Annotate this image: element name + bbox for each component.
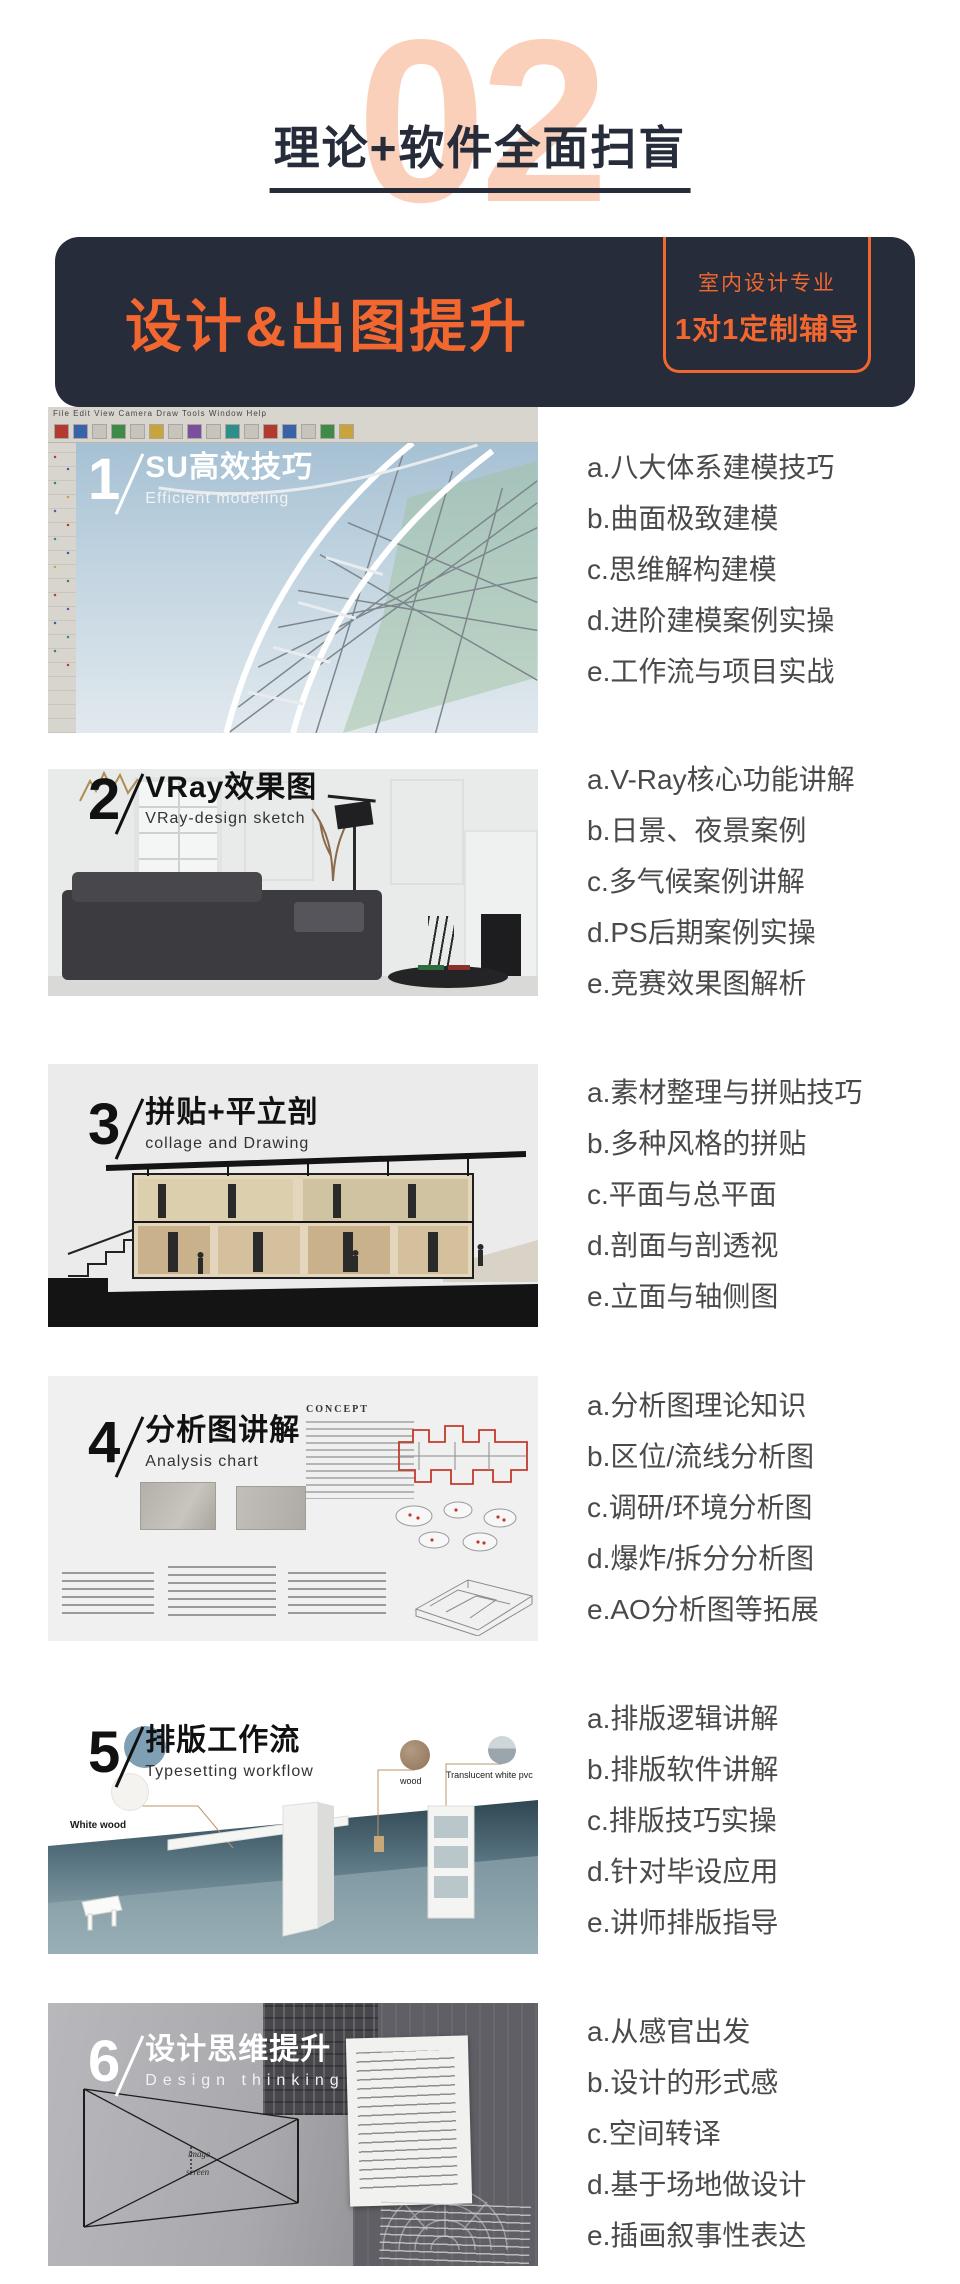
toolbar-icon	[282, 424, 297, 439]
section-number: 3	[88, 1096, 120, 1154]
page-title: 理论+软件全面扫盲	[270, 112, 691, 193]
section-subtitle: Design thinking	[145, 2072, 344, 2090]
reference-photo-thumb	[236, 1486, 306, 1530]
toolbar-icon	[320, 424, 335, 439]
section-number: 1	[88, 451, 120, 509]
course-section-design-thinking: image screen 6 设计思维提升 Design thinking a.…	[0, 1995, 960, 2273]
course-item: a.八大体系建模技巧	[587, 454, 834, 482]
course-image-typesetting: White wood wood Translucent white pvc 5 …	[48, 1688, 538, 1954]
section-title: 排版工作流	[145, 1724, 314, 1757]
course-section-su: File Edit View Camera Draw Tools Window …	[0, 407, 960, 733]
course-section-collage: 3 拼贴+平立剖 collage and Drawing a.素材整理与拼贴技巧…	[0, 1056, 960, 1334]
book-shape	[418, 965, 444, 970]
building-section-drawing	[48, 1142, 538, 1327]
course-item: d.剖面与剖透视	[587, 1232, 862, 1260]
course-item: e.AO分析图等拓展	[587, 1596, 819, 1624]
course-section-typesetting: White wood wood Translucent white pvc 5 …	[0, 1682, 960, 1960]
course-item-list: a.从感官出发 b.设计的形式感 c.空间转译 d.基于场地做设计 e.插画叙事…	[587, 1995, 806, 2273]
course-item: a.分析图理论知识	[587, 1392, 819, 1420]
course-item: c.思维解构建模	[587, 556, 834, 584]
badge-main-text: 1对1定制辅导	[666, 306, 868, 348]
course-item: d.进阶建模案例实操	[587, 607, 834, 635]
course-item: b.日景、夜景案例	[587, 817, 855, 845]
section-number: 4	[88, 1414, 120, 1472]
sketch-word-image: image	[188, 2149, 210, 2159]
hero: 02 理论+软件全面扫盲	[0, 0, 960, 237]
section-heading: 1 SU高效技巧 Efficient modeling	[88, 451, 313, 517]
sketch-word-screen: screen	[186, 2167, 209, 2177]
studio-light-head-shape	[335, 800, 374, 829]
toolbar-icon	[111, 424, 126, 439]
course-item-list: a.素材整理与拼贴技巧 b.多种风格的拼贴 c.平面与总平面 d.剖面与剖透视 …	[587, 1056, 862, 1334]
section-title: 分析图讲解	[145, 1414, 300, 1447]
course-image-design-collage: image screen 6 设计思维提升 Design thinking	[48, 2003, 538, 2266]
material-label-whitewood: White wood	[70, 1820, 126, 1831]
section-subtitle: Efficient modeling	[145, 490, 313, 508]
course-item: a.V-Ray核心功能讲解	[587, 766, 855, 794]
section-title: SU高效技巧	[145, 451, 313, 484]
bubble-diagram	[386, 1498, 536, 1556]
section-heading: 5 排版工作流 Typesetting workflow	[88, 1724, 314, 1790]
toolbar-icon	[206, 424, 221, 439]
course-item-list: a.八大体系建模技巧 b.曲面极致建模 c.思维解构建模 d.进阶建模案例实操 …	[587, 431, 834, 709]
toolbar-icon	[168, 424, 183, 439]
course-item: e.立面与轴侧图	[587, 1283, 862, 1311]
course-item-list: a.分析图理论知识 b.区位/流线分析图 c.调研/环境分析图 d.爆炸/拆分分…	[587, 1369, 819, 1647]
course-item: d.针对毕设应用	[587, 1858, 778, 1886]
course-item-list: a.排版逻辑讲解 b.排版软件讲解 c.排版技巧实操 d.针对毕设应用 e.讲师…	[587, 1682, 778, 1960]
course-image-vray-render: 2 VRay效果图 VRay-design sketch	[48, 769, 538, 996]
sketchup-toolbar-icons	[48, 420, 538, 443]
toolbar-icon	[263, 424, 278, 439]
course-item: d.基于场地做设计	[587, 2171, 806, 2199]
course-item: a.排版逻辑讲解	[587, 1705, 778, 1733]
section-number: 5	[88, 1724, 120, 1782]
banner-title: 设计&出图提升	[125, 281, 529, 363]
promo-page: 02 理论+软件全面扫盲 设计&出图提升 室内设计专业 1对1定制辅导 File…	[0, 0, 960, 2284]
section-number: 2	[88, 771, 120, 829]
handwriting-lines-dark	[379, 2201, 531, 2264]
toolbar-icon	[301, 424, 316, 439]
course-item: d.PS后期案例实操	[587, 919, 855, 947]
toolbar-icon	[339, 424, 354, 439]
sketchup-tool-palette	[48, 443, 77, 733]
course-item: d.爆炸/拆分分析图	[587, 1545, 819, 1573]
banner: 设计&出图提升 室内设计专业 1对1定制辅导	[55, 237, 915, 407]
course-image-section-drawing: 3 拼贴+平立剖 collage and Drawing	[48, 1064, 538, 1327]
course-image-analysis-slide: CONCEPT	[48, 1376, 538, 1641]
section-heading: 4 分析图讲解 Analysis chart	[88, 1414, 300, 1480]
course-item: b.曲面极致建模	[587, 505, 834, 533]
course-item: c.多气候案例讲解	[587, 868, 855, 896]
course-section-analysis: CONCEPT	[0, 1369, 960, 1647]
course-item: a.素材整理与拼贴技巧	[587, 1079, 862, 1107]
caption-text-lines	[288, 1572, 386, 1620]
course-sections: File Edit View Camera Draw Tools Window …	[0, 407, 960, 2273]
axonometric-plan-wireframe	[406, 1554, 536, 1636]
caption-text-lines	[168, 1566, 276, 1622]
handwritten-note-paper	[346, 2035, 472, 2206]
section-subtitle: collage and Drawing	[145, 1135, 319, 1153]
course-item: b.排版软件讲解	[587, 1756, 778, 1784]
section-heading: 2 VRay效果图 VRay-design sketch	[88, 771, 317, 837]
section-title: 设计思维提升	[145, 2033, 344, 2066]
banner-badge: 室内设计专业 1对1定制辅导	[663, 237, 871, 373]
material-label-pvc: Translucent white pvc	[446, 1770, 533, 1780]
material-swatch-pvc	[488, 1736, 516, 1764]
book-shape	[448, 965, 470, 970]
course-item: e.工作流与项目实战	[587, 658, 834, 686]
handwriting-lines	[356, 2049, 458, 2194]
course-item: b.多种风格的拼贴	[587, 1130, 862, 1158]
badge-subtitle: 室内设计专业	[666, 267, 868, 297]
section-heading: 6 设计思维提升 Design thinking	[88, 2033, 345, 2099]
material-label-wood: wood	[400, 1776, 422, 1786]
course-item: b.设计的形式感	[587, 2069, 806, 2097]
sketchup-menu-bar: File Edit View Camera Draw Tools Window …	[48, 407, 538, 420]
fireplace-opening-shape	[481, 914, 521, 976]
section-subtitle: Typesetting workflow	[145, 1763, 314, 1781]
toolbar-icon	[187, 424, 202, 439]
course-image-sketchup: File Edit View Camera Draw Tools Window …	[48, 407, 538, 733]
section-heading: 3 拼贴+平立剖 collage and Drawing	[88, 1096, 319, 1162]
material-swatch-wood	[400, 1740, 430, 1770]
toolbar-icon	[73, 424, 88, 439]
sofa-shape	[62, 890, 382, 980]
course-item: e.竞赛效果图解析	[587, 970, 855, 998]
section-number: 6	[88, 2033, 120, 2091]
course-item: a.从感官出发	[587, 2018, 806, 2046]
course-item: c.空间转译	[587, 2120, 806, 2148]
toolbar-icon	[225, 424, 240, 439]
floor-plan-red-outline	[393, 1420, 533, 1492]
toolbar-icon	[54, 424, 69, 439]
course-item-list: a.V-Ray核心功能讲解 b.日景、夜景案例 c.多气候案例讲解 d.PS后期…	[587, 743, 855, 1021]
caption-text-lines	[62, 1572, 154, 1620]
reference-photo-thumb	[140, 1482, 216, 1530]
section-subtitle: VRay-design sketch	[145, 810, 317, 828]
course-section-vray: 2 VRay效果图 VRay-design sketch a.V-Ray核心功能…	[0, 743, 960, 1021]
toolbar-icon	[130, 424, 145, 439]
toolbar-icon	[149, 424, 164, 439]
section-title: 拼贴+平立剖	[145, 1096, 319, 1129]
course-item: c.排版技巧实操	[587, 1807, 778, 1835]
section-subtitle: Analysis chart	[145, 1453, 300, 1471]
course-item: e.插画叙事性表达	[587, 2222, 806, 2250]
course-item: c.平面与总平面	[587, 1181, 862, 1209]
toolbar-icon	[244, 424, 259, 439]
wall-panel-shape	[390, 779, 464, 885]
concept-label: CONCEPT	[306, 1404, 414, 1415]
course-item: b.区位/流线分析图	[587, 1443, 819, 1471]
toolbar-icon	[92, 424, 107, 439]
section-title: VRay效果图	[145, 771, 317, 804]
course-item: e.讲师排版指导	[587, 1909, 778, 1937]
course-item: c.调研/环境分析图	[587, 1494, 819, 1522]
